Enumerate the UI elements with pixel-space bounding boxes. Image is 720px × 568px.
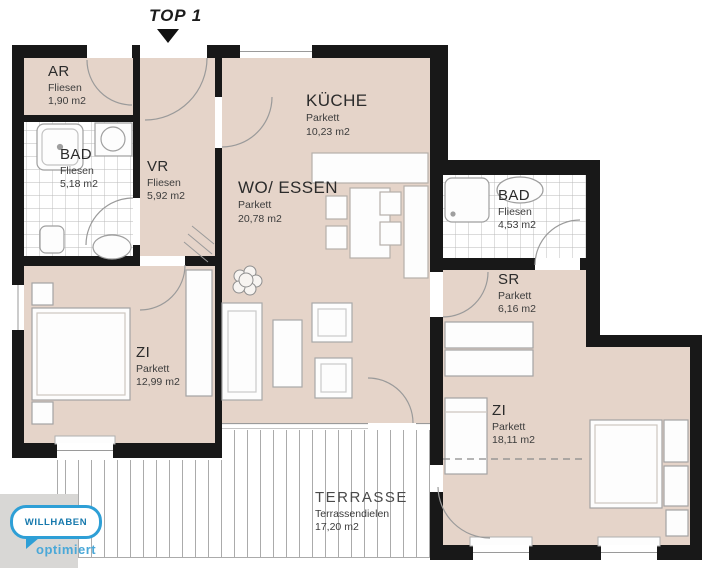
double-bed-icon	[32, 308, 130, 400]
room-label-kueche: KÜCHE Parkett 10,23 m2	[306, 90, 368, 139]
nightstand-icon	[666, 510, 688, 536]
nightstand-icon	[664, 420, 688, 462]
wc-icon	[93, 235, 131, 259]
zi-left-door-opening	[140, 256, 185, 266]
sr-door-opening	[430, 272, 443, 317]
room-label-wo-essen: WO/ ESSEN Parkett 20,78 m2	[238, 177, 338, 226]
living-door-opening	[215, 97, 222, 148]
logo-tagline: optimiert	[36, 542, 96, 557]
nightstand-icon	[32, 402, 53, 424]
bad-left-door-opening	[133, 198, 140, 245]
double-bed-icon	[590, 420, 662, 508]
bad-right-door-opening	[535, 258, 580, 270]
room-label-zi-left: ZI Parkett 12,99 m2	[136, 343, 180, 390]
room-label-terrasse: TERRASSE Terrassendielen 17,20 m2	[315, 488, 408, 535]
room-label-vr: VR Fliesen 5,92 m2	[147, 157, 185, 204]
shelf-icon	[445, 350, 533, 376]
floorplan-image: TOP 1 AR Fliesen 1,90 m2 BAD Fliesen 5,1…	[0, 0, 720, 568]
single-bed-icon	[445, 398, 487, 474]
room-label-zi-right: ZI Parkett 18,11 m2	[492, 401, 535, 448]
willhaben-logo: WILLHABEN	[10, 505, 102, 539]
chair-icon	[326, 226, 347, 249]
room-label-sr: SR Parkett 6,16 m2	[498, 270, 536, 317]
nightstand-icon	[664, 466, 688, 506]
floorplan-drawing	[0, 0, 720, 568]
shelf-icon	[445, 322, 533, 348]
entrance-door-opening	[140, 45, 207, 58]
zi-right-terrace-door-opening	[430, 465, 443, 492]
wardrobe-icon	[186, 270, 212, 396]
room-label-bad-left: BAD Fliesen 5,18 m2	[60, 145, 98, 192]
chair-icon	[380, 192, 401, 215]
room-label-ar: AR Fliesen 1,90 m2	[48, 62, 86, 109]
unit-marker: TOP 1	[149, 6, 202, 26]
coffee-table-icon	[273, 320, 302, 387]
room-label-bad-right: BAD Fliesen 4,53 m2	[498, 186, 536, 233]
ar-door-opening	[87, 45, 132, 58]
kitchen-counter-icon	[404, 186, 428, 278]
chair-icon	[380, 222, 401, 245]
nightstand-icon	[32, 283, 53, 305]
arrow-down-icon	[157, 29, 179, 43]
toilet-icon	[40, 226, 64, 253]
